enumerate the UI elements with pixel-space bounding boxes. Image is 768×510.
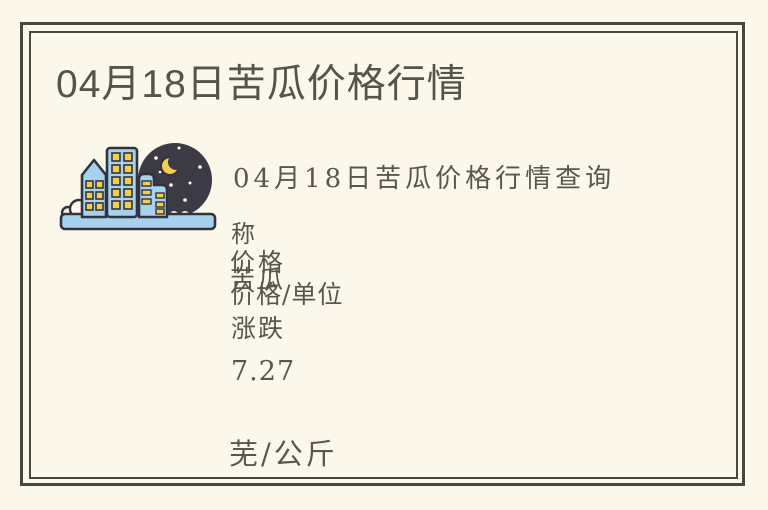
table-cell-unit-value: 芜/公斤 xyxy=(229,440,338,469)
table-cell-price-value: 7.27 xyxy=(231,358,295,385)
page-title: 04月18日苦瓜价格行情 xyxy=(56,64,467,107)
table-cell-change-label: 涨跌 xyxy=(231,316,285,341)
table-cell-price-label: 价格 xyxy=(230,250,286,275)
city-night-illustration xyxy=(57,137,219,232)
building-middle-icon xyxy=(107,148,137,217)
table-cell-price-unit-label: 价格/单位 xyxy=(230,282,343,307)
building-left-icon xyxy=(82,160,106,217)
hero-subtitle: 04月18日苦瓜价格行情查询 xyxy=(233,166,615,192)
table-cell-name-label: 称 xyxy=(231,222,257,246)
